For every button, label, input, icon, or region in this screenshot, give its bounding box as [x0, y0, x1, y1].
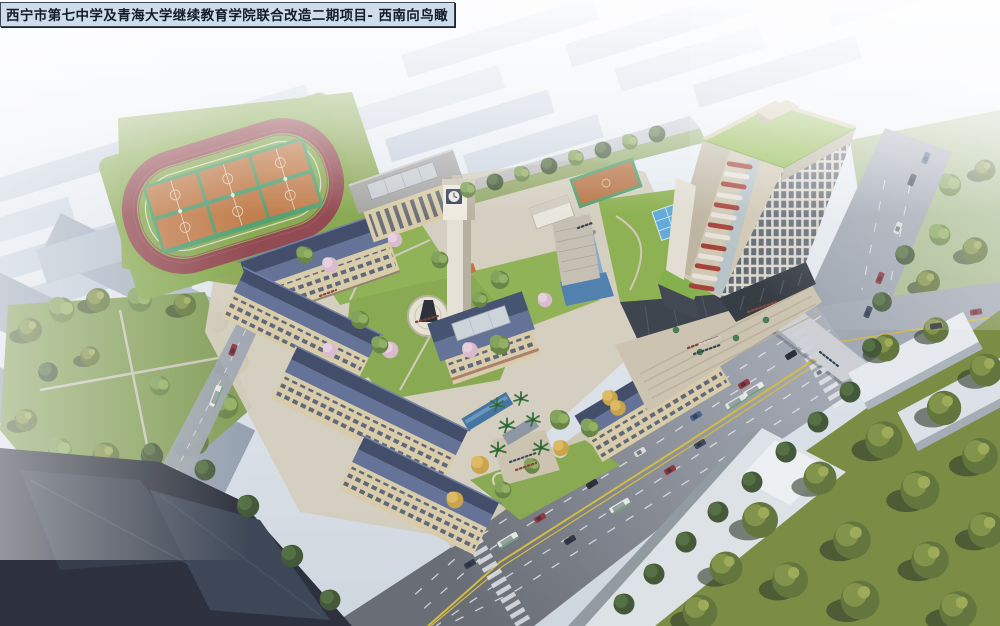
rendering-canvas — [0, 0, 1000, 626]
aerial-rendering-stage: 西宁市第七中学及青海大学继续教育学院联合改造二期项目- 西南向鸟瞰 — [0, 0, 1000, 626]
haze-overlays — [0, 0, 1000, 626]
title-caption-text: 西宁市第七中学及青海大学继续教育学院联合改造二期项目- 西南向鸟瞰 — [6, 8, 448, 24]
title-caption: 西宁市第七中学及青海大学继续教育学院联合改造二期项目- 西南向鸟瞰 — [0, 2, 455, 27]
